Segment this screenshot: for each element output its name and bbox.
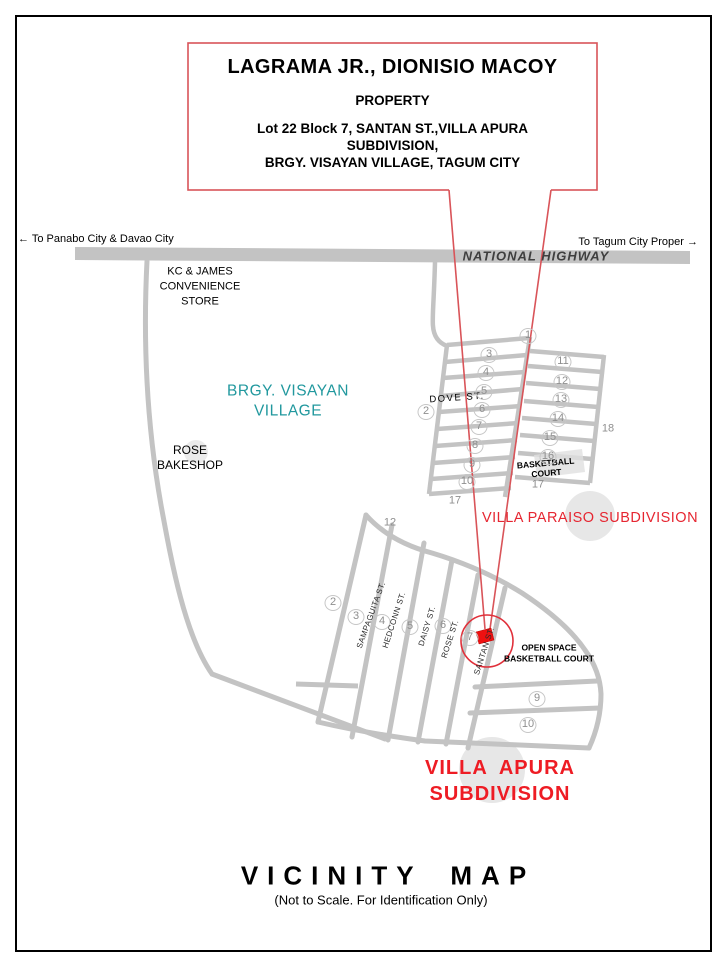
block-number: 17: [532, 479, 544, 492]
grid-right-street: [590, 355, 604, 483]
villa-apura-label: VILLA APURA SUBDIVISION: [398, 755, 603, 807]
villa-paraiso-label: VILLA PARAISO SUBDIVISION: [482, 510, 698, 526]
property-owner: LAGRAMA JR., DIONISIO MACOY: [188, 56, 597, 79]
direction-panabo-davao: ← To Panabo City & Davao City: [18, 233, 174, 245]
block-number: 17: [449, 495, 461, 508]
bakeshop-label: ROSE BAKESHOP: [143, 443, 238, 473]
block-number: 12: [554, 374, 571, 390]
property-label: PROPERTY: [188, 93, 597, 108]
block-number: 16: [540, 449, 557, 465]
block-number: 3: [481, 347, 498, 363]
map-title: VICINITY MAP: [241, 861, 535, 892]
apura-bottom-boundary: [318, 722, 589, 748]
convenience-store-label: KC & JAMES CONVENIENCE STORE: [140, 265, 260, 310]
block-number: 15: [542, 430, 559, 446]
block-number: 13: [553, 392, 570, 408]
block-number: 14: [550, 411, 567, 427]
direction-tagum-proper: To Tagum City Proper →: [578, 236, 698, 248]
open-space-label: OPEN SPACE BASKETBALL COURT: [497, 643, 601, 664]
block-number: 1: [520, 328, 537, 344]
block-number: 5: [402, 619, 419, 635]
block-number: 7: [462, 630, 479, 646]
block-number: 11: [555, 354, 572, 370]
block-number: 2: [418, 404, 435, 420]
block-number: 6: [474, 402, 491, 418]
left-curved-road: [145, 261, 385, 739]
block-number: 3: [348, 609, 365, 625]
block-number: 5: [476, 384, 493, 400]
block-number: 7: [471, 419, 488, 435]
block-number: 10: [520, 717, 537, 733]
grid-row: [447, 338, 529, 345]
block-number: 10: [459, 474, 476, 490]
block-number: 9: [529, 691, 546, 707]
vicinity-map-page: LAGRAMA JR., DIONISIO MACOY PROPERTY Lot…: [0, 0, 720, 960]
apura-cross-street: [470, 708, 600, 713]
access-road-upper: [433, 262, 447, 346]
grid-left-street: [429, 345, 447, 494]
barangay-label: BRGY. VISAYAN VILLAGE: [203, 382, 373, 421]
block-number: 18: [602, 423, 614, 436]
property-address-line1: Lot 22 Block 7, SANTAN ST.,VILLA APURA S…: [188, 120, 597, 154]
apura-cross-street: [475, 681, 597, 687]
property-address-line2: BRGY. VISAYAN VILLAGE, TAGUM CITY: [188, 154, 597, 171]
block-number: 9: [464, 457, 481, 473]
property-callout: LAGRAMA JR., DIONISIO MACOY PROPERTY Lot…: [188, 43, 597, 190]
map-note: (Not to Scale. For Identification Only): [274, 893, 487, 908]
block-number: 2: [325, 595, 342, 611]
block-number: 4: [478, 365, 495, 381]
national-highway-label: NATIONAL HIGHWAY: [463, 249, 610, 264]
block-number: 12: [384, 517, 396, 530]
block-number: 8: [467, 438, 484, 454]
